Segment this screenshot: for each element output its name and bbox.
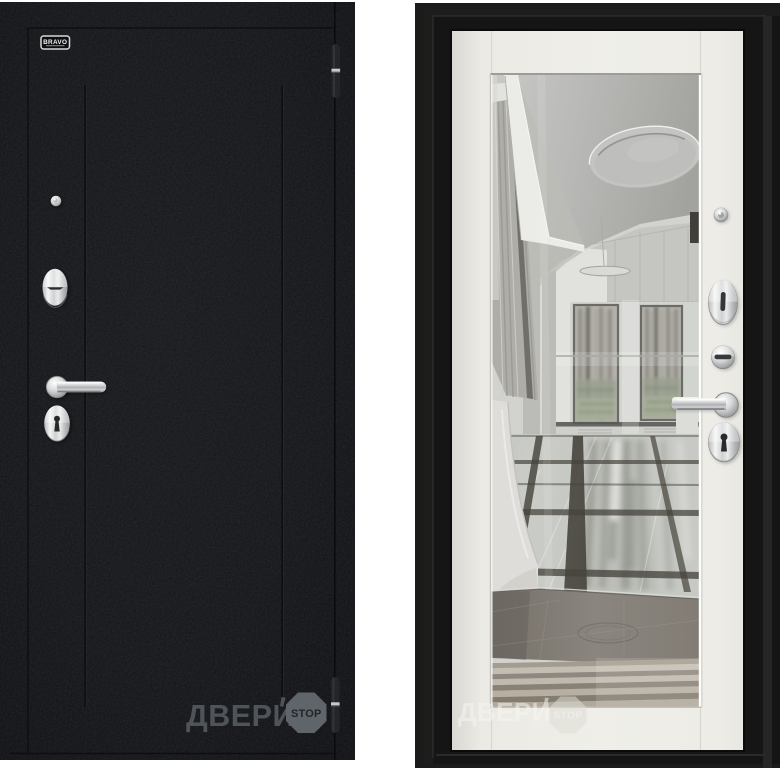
svg-text:BRAVO: BRAVO [43,39,67,46]
svg-text:ДВЕРИ: ДВЕРИ [186,699,295,733]
svg-text:STOP: STOP [291,708,322,720]
svg-text:STOP: STOP [553,709,582,721]
svg-text:ДВЕРИ: ДВЕРИ [458,697,551,727]
